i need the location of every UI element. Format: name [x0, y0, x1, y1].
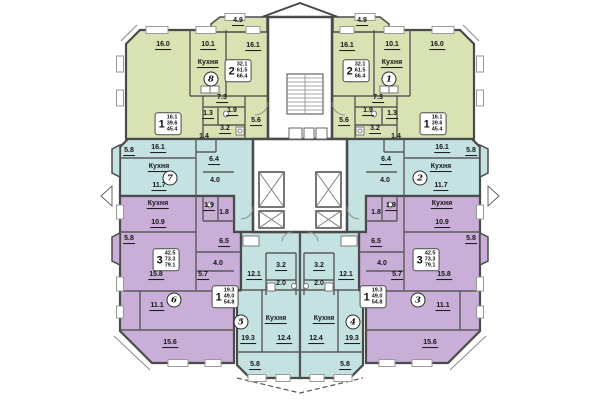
apartment-rooms-count: 3	[417, 255, 423, 265]
room-area-label: 3.2	[369, 125, 381, 134]
apartment-area-total: 66.4	[237, 74, 248, 80]
room-area-label: 19.3	[240, 335, 256, 344]
room-area-label: 16.1	[245, 42, 261, 51]
room-area-label: 5.8	[123, 235, 135, 244]
apartment-info-box: 232.161.566.4	[225, 59, 252, 82]
room-area-label: 5.8	[465, 147, 477, 156]
apartment-info-box: 119.349.054.8	[212, 285, 239, 308]
labels-layer: 4.916.010.116.1Кухня7.31.31.93.25.61.44.…	[0, 0, 600, 400]
room-area-label: 16.0	[155, 41, 171, 50]
room-area-label: 6.4	[208, 156, 220, 165]
room-area-label: 10.9	[150, 219, 166, 228]
room-area-label: 15.8	[436, 271, 452, 280]
room-area-label: 10.1	[200, 41, 216, 50]
room-area-label: 5.8	[249, 361, 261, 370]
apartment-rooms-count: 1	[159, 119, 165, 129]
room-area-label: 6.5	[218, 238, 230, 247]
apartment-area-total: 54.8	[224, 300, 235, 306]
apartment-info-box: 116.139.645.4	[155, 112, 182, 135]
room-area-label: 4.0	[377, 260, 387, 267]
apartment-info-box: 119.349.054.8	[360, 285, 387, 308]
apartment-area-total: 45.4	[432, 127, 443, 133]
room-area-label: 19.3	[344, 335, 360, 344]
room-area-label: 12.4	[308, 335, 324, 344]
room-area-label: 7.3	[372, 94, 384, 103]
room-area-label: 12.1	[338, 271, 354, 280]
floor-plan: 4.916.010.116.1Кухня7.31.31.93.25.61.44.…	[0, 0, 600, 400]
kitchen-label: Кухня	[197, 59, 219, 68]
room-area-label: 10.9	[434, 219, 450, 228]
room-area-label: 5.6	[250, 117, 262, 126]
apartment-rooms-count: 1	[424, 119, 430, 129]
room-area-label: 10.1	[384, 41, 400, 50]
apartment-area-total: 66.4	[355, 74, 366, 80]
apartment-info-box: 342.573.379.1	[153, 248, 180, 271]
apartment-number-badge: 4	[346, 315, 361, 330]
room-area-label: 4.0	[380, 177, 390, 184]
room-area-label: 5.7	[197, 271, 209, 280]
kitchen-label: Кухня	[147, 200, 169, 209]
room-area-label: 1.9	[385, 202, 397, 211]
room-area-label: 2.0	[276, 280, 286, 287]
apartment-info-box: 232.161.566.4	[343, 59, 370, 82]
room-area-label: 6.5	[370, 238, 382, 247]
room-area-label: 16.1	[339, 42, 355, 51]
room-area-label: 1.9	[203, 202, 215, 211]
apartment-area-total: 54.8	[372, 300, 383, 306]
room-area-label: 1.9	[226, 107, 238, 116]
apartment-number-badge: 8	[204, 72, 219, 87]
apartment-info-box: 342.573.379.1	[413, 248, 440, 271]
kitchen-label: Кухня	[430, 163, 452, 172]
room-area-label: 11.1	[435, 302, 450, 311]
room-area-label: 2.0	[314, 280, 324, 287]
room-area-label: 6.4	[380, 156, 392, 165]
room-area-label: 3.2	[275, 262, 287, 271]
room-area-label: 1.8	[219, 209, 229, 216]
room-area-label: 15.6	[162, 339, 178, 348]
apartment-rooms-count: 2	[347, 66, 353, 76]
room-area-label: 5.8	[339, 361, 351, 370]
room-area-label: 5.7	[391, 271, 403, 280]
room-area-label: 4.0	[213, 260, 223, 267]
room-area-label: 1.3	[202, 110, 214, 119]
room-area-label: 3.2	[219, 125, 231, 134]
room-area-label: 5.6	[338, 117, 350, 126]
room-area-label: 15.6	[422, 339, 438, 348]
room-area-label: 12.1	[246, 271, 262, 280]
apartment-number-badge: 7	[163, 171, 178, 186]
room-area-label: 16.0	[429, 41, 445, 50]
room-area-label: 3.2	[313, 262, 325, 271]
apartment-area-total: 45.4	[167, 127, 178, 133]
apartment-area-total: 79.1	[425, 263, 436, 269]
room-area-label: 16.1	[434, 144, 450, 153]
room-area-label: 1.8	[371, 209, 381, 216]
room-area-label: 1.9	[362, 107, 374, 116]
room-area-label: 4.9	[356, 17, 368, 26]
room-area-label: 12.4	[276, 335, 292, 344]
room-area-label: 5.8	[465, 235, 477, 244]
room-area-label: 4.0	[210, 177, 220, 184]
room-area-label: 1.4	[199, 133, 209, 140]
apartment-number-badge: 3	[411, 293, 426, 308]
room-area-label: 1.3	[386, 110, 398, 119]
apartment-number-badge: 2	[413, 171, 428, 186]
room-area-label: 4.9	[232, 17, 244, 26]
room-area-label: 16.1	[150, 144, 166, 153]
apartment-rooms-count: 1	[364, 292, 370, 302]
apartment-info-box: 116.139.645.4	[420, 112, 447, 135]
apartment-rooms-count: 1	[216, 292, 222, 302]
apartment-number-badge: 6	[167, 293, 182, 308]
apartment-number-badge: 5	[234, 315, 249, 330]
room-area-label: 5.8	[123, 147, 135, 156]
room-area-label: 15.8	[148, 271, 164, 280]
kitchen-label: Кухня	[313, 315, 335, 324]
apartment-area-total: 79.1	[165, 263, 176, 269]
apartment-rooms-count: 2	[229, 66, 235, 76]
room-area-label: 7.3	[216, 94, 228, 103]
room-area-label: 11.7	[433, 182, 448, 191]
room-area-label: 1.4	[391, 133, 401, 140]
room-area-label: 11.1	[149, 302, 164, 311]
kitchen-label: Кухня	[431, 200, 453, 209]
kitchen-label: Кухня	[265, 315, 287, 324]
apartment-number-badge: 1	[382, 72, 397, 87]
apartment-rooms-count: 3	[157, 255, 163, 265]
kitchen-label: Кухня	[381, 59, 403, 68]
